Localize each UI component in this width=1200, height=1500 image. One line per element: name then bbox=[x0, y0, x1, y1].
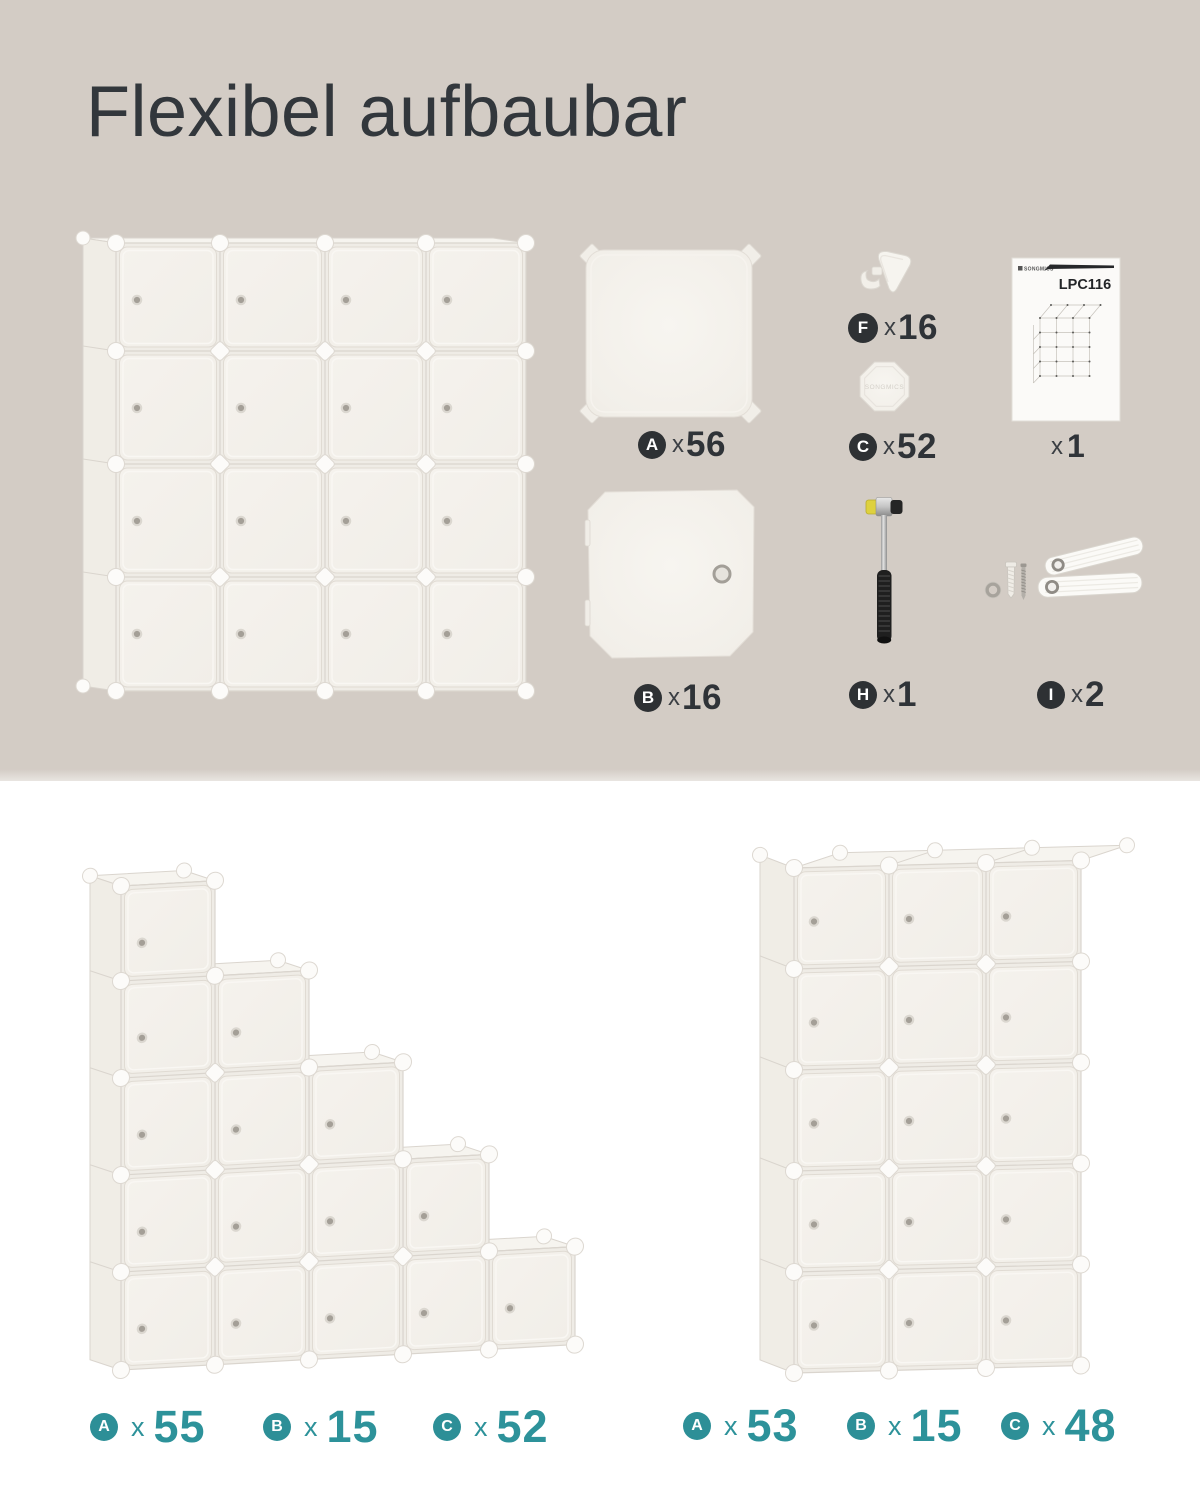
svg-text:LPC116: LPC116 bbox=[1059, 277, 1111, 293]
svg-text:SONGMICS: SONGMICS bbox=[865, 384, 905, 391]
